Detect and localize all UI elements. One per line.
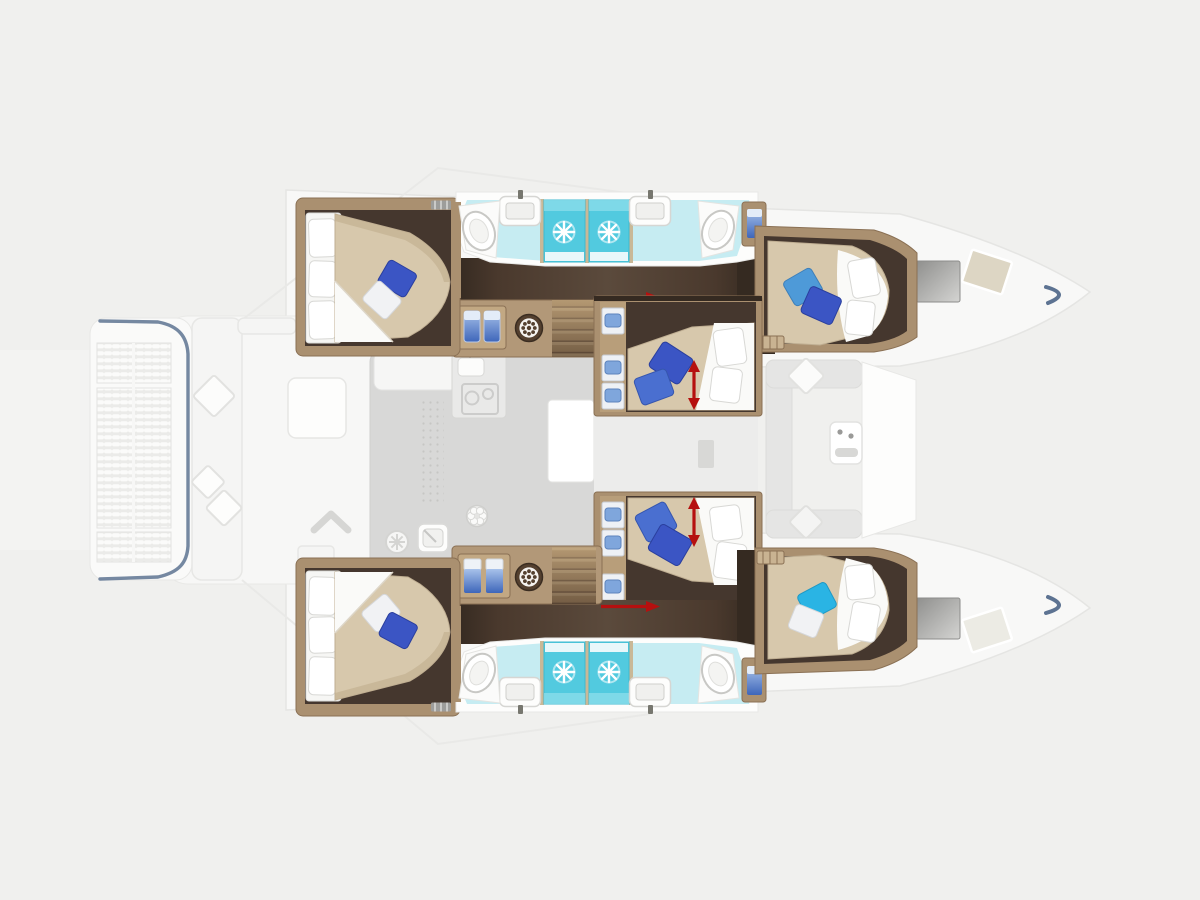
bulkhead (452, 202, 461, 298)
cockpit-bench (192, 318, 242, 580)
shower-glass (589, 693, 629, 704)
sink (500, 678, 541, 707)
salon-sink-square (418, 524, 448, 552)
galley-sink (458, 358, 484, 376)
stairs-shading (552, 300, 596, 357)
center-cabin-lobby (594, 415, 758, 499)
duvet-panel (847, 601, 881, 643)
shower-jet-icon (554, 222, 575, 243)
foredeck-floor (862, 362, 916, 538)
locker-berth (602, 383, 624, 409)
cabin-starboard-aft (296, 558, 460, 716)
sink (500, 197, 541, 226)
stairs-shading (552, 547, 596, 604)
console-table (830, 422, 862, 464)
faucet-icon (648, 705, 653, 714)
washing-machine-icon (516, 315, 543, 342)
faucet-icon (518, 705, 523, 714)
hull-window (916, 598, 960, 639)
towel-fold (464, 311, 480, 320)
vent-fan-icon (467, 506, 488, 527)
shower-jet-icon (599, 222, 620, 243)
sink (630, 197, 671, 226)
cabin-port-aft (296, 198, 460, 356)
aft-platform (90, 318, 192, 580)
shower-mullion (585, 199, 589, 263)
locker-berth (602, 574, 624, 600)
cockpit-bench-top (238, 318, 296, 334)
hull-window (916, 261, 960, 302)
shower-mullion (585, 641, 589, 705)
hull-edge (594, 296, 762, 301)
hatch-fan-icon (386, 531, 408, 553)
forward-cockpit (766, 358, 916, 539)
duvet-panel (844, 300, 875, 337)
duvet-panel (844, 564, 875, 601)
dresser (757, 551, 784, 564)
head-cushion (308, 657, 336, 696)
duvet-panel (847, 257, 881, 299)
shower-tray (590, 643, 628, 652)
towel-fold (484, 311, 500, 320)
companionway-starboard (452, 546, 602, 604)
vent-grille-icon (431, 201, 451, 210)
shower-jet-icon (599, 662, 620, 683)
towel-fold (747, 209, 762, 217)
head-cushion (308, 219, 336, 258)
catamaran-floor-plan-page (0, 0, 1200, 900)
salon-island (548, 400, 594, 482)
sink (630, 678, 671, 707)
slat-seam (132, 343, 135, 562)
shower-tray (545, 643, 584, 652)
duvet-panel (709, 504, 743, 541)
shower-tray (590, 252, 628, 261)
cabin-port-forward (755, 226, 917, 352)
shower-glass (544, 693, 585, 704)
catamaran-floor-plan (0, 0, 1200, 900)
head-cushion (308, 617, 336, 654)
locker-berth (602, 308, 624, 334)
washing-machine-icon (516, 564, 543, 591)
head-cushion (308, 301, 336, 340)
galley-counter (374, 352, 458, 390)
shower-jet-icon (554, 662, 575, 683)
shower-glass (589, 200, 629, 211)
hanging-shirt (464, 559, 481, 593)
faucet-icon (518, 190, 523, 199)
duvet-panel (709, 366, 743, 403)
bulkhead (452, 606, 461, 702)
head-cushion (308, 261, 336, 298)
companionway-port (452, 300, 602, 357)
duvet-panel (713, 327, 748, 367)
galley-floor-mat (420, 400, 444, 504)
shower-tray (545, 252, 584, 261)
vent-grille-icon (431, 703, 451, 712)
hanging-shirt (486, 559, 503, 593)
center-cabin-lower (594, 492, 762, 610)
cockpit-table (288, 378, 346, 438)
head-cushion (308, 577, 336, 616)
locker-berth (602, 530, 624, 556)
locker-berth (602, 502, 624, 528)
lobby-recess (698, 440, 714, 468)
shower-glass (544, 200, 585, 211)
center-cabin-upper (594, 296, 762, 416)
faucet-icon (648, 190, 653, 199)
cabin-starboard-forward (755, 548, 917, 674)
locker-berth (602, 355, 624, 381)
